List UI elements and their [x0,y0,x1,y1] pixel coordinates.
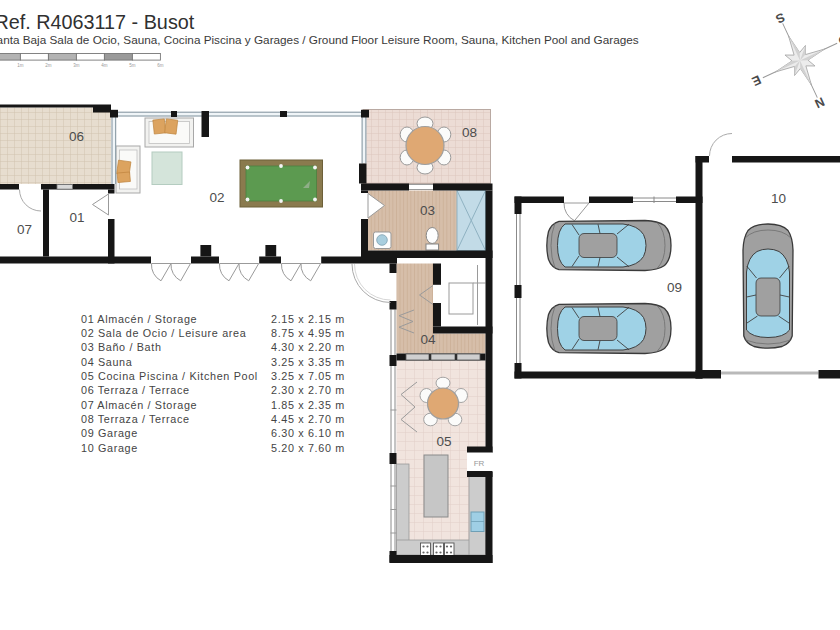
svg-text:09: 09 [667,280,682,295]
svg-text:06: 06 [69,129,84,144]
svg-text:6.30 x 6.10 m: 6.30 x 6.10 m [271,427,345,439]
svg-text:08: 08 [462,125,477,140]
svg-text:3.25 x 3.35 m: 3.25 x 3.35 m [271,356,345,368]
svg-text:FR: FR [474,459,485,468]
svg-text:8.75 x 4.95 m: 8.75 x 4.95 m [271,327,345,339]
svg-text:4m: 4m [101,63,108,68]
svg-text:05 Cocina Piscina / Kitchen Po: 05 Cocina Piscina / Kitchen Pool [81,370,258,382]
svg-text:2m: 2m [45,63,52,68]
svg-text:05: 05 [436,434,451,449]
svg-text:4.30 x 2.20 m: 4.30 x 2.20 m [271,341,345,353]
svg-text:2.15 x 2.15 m: 2.15 x 2.15 m [271,313,345,325]
svg-text:10: 10 [771,191,786,206]
svg-text:10 Garage: 10 Garage [81,442,138,454]
svg-text:01 Almacén / Storage: 01 Almacén / Storage [81,313,197,325]
svg-text:5m: 5m [129,63,136,68]
svg-text:03 Baño / Bath: 03 Baño / Bath [81,341,162,353]
svg-text:06 Terraza / Terrace: 06 Terraza / Terrace [81,384,190,396]
svg-text:6m: 6m [157,63,164,68]
svg-text:04 Sauna: 04 Sauna [81,356,132,368]
svg-text:01: 01 [69,210,84,225]
svg-text:08 Terraza / Terrace: 08 Terraza / Terrace [81,413,190,425]
svg-text:Ref. R4063117 - Busot: Ref. R4063117 - Busot [0,11,195,33]
svg-text:3.25 x 7.05 m: 3.25 x 7.05 m [271,370,345,382]
svg-text:lanta Baja Sala de Ocio, Sauna: lanta Baja Sala de Ocio, Sauna, Cocina P… [0,33,639,46]
svg-text:02: 02 [209,190,224,205]
svg-text:4.45 x 2.70 m: 4.45 x 2.70 m [271,413,345,425]
svg-text:02 Sala de Ocio / Leisure area: 02 Sala de Ocio / Leisure area [81,327,246,339]
svg-text:07: 07 [17,222,32,237]
svg-text:2.30 x 2.70 m: 2.30 x 2.70 m [271,384,345,396]
svg-text:1.85 x 2.35 m: 1.85 x 2.35 m [271,399,345,411]
svg-text:04: 04 [420,332,436,347]
svg-text:3m: 3m [73,63,80,68]
svg-text:03: 03 [420,203,435,218]
svg-text:1m: 1m [17,63,24,68]
svg-text:07 Almacén / Storage: 07 Almacén / Storage [81,399,197,411]
svg-text:09 Garage: 09 Garage [81,427,138,439]
svg-text:5.20 x 7.60 m: 5.20 x 7.60 m [271,442,345,454]
